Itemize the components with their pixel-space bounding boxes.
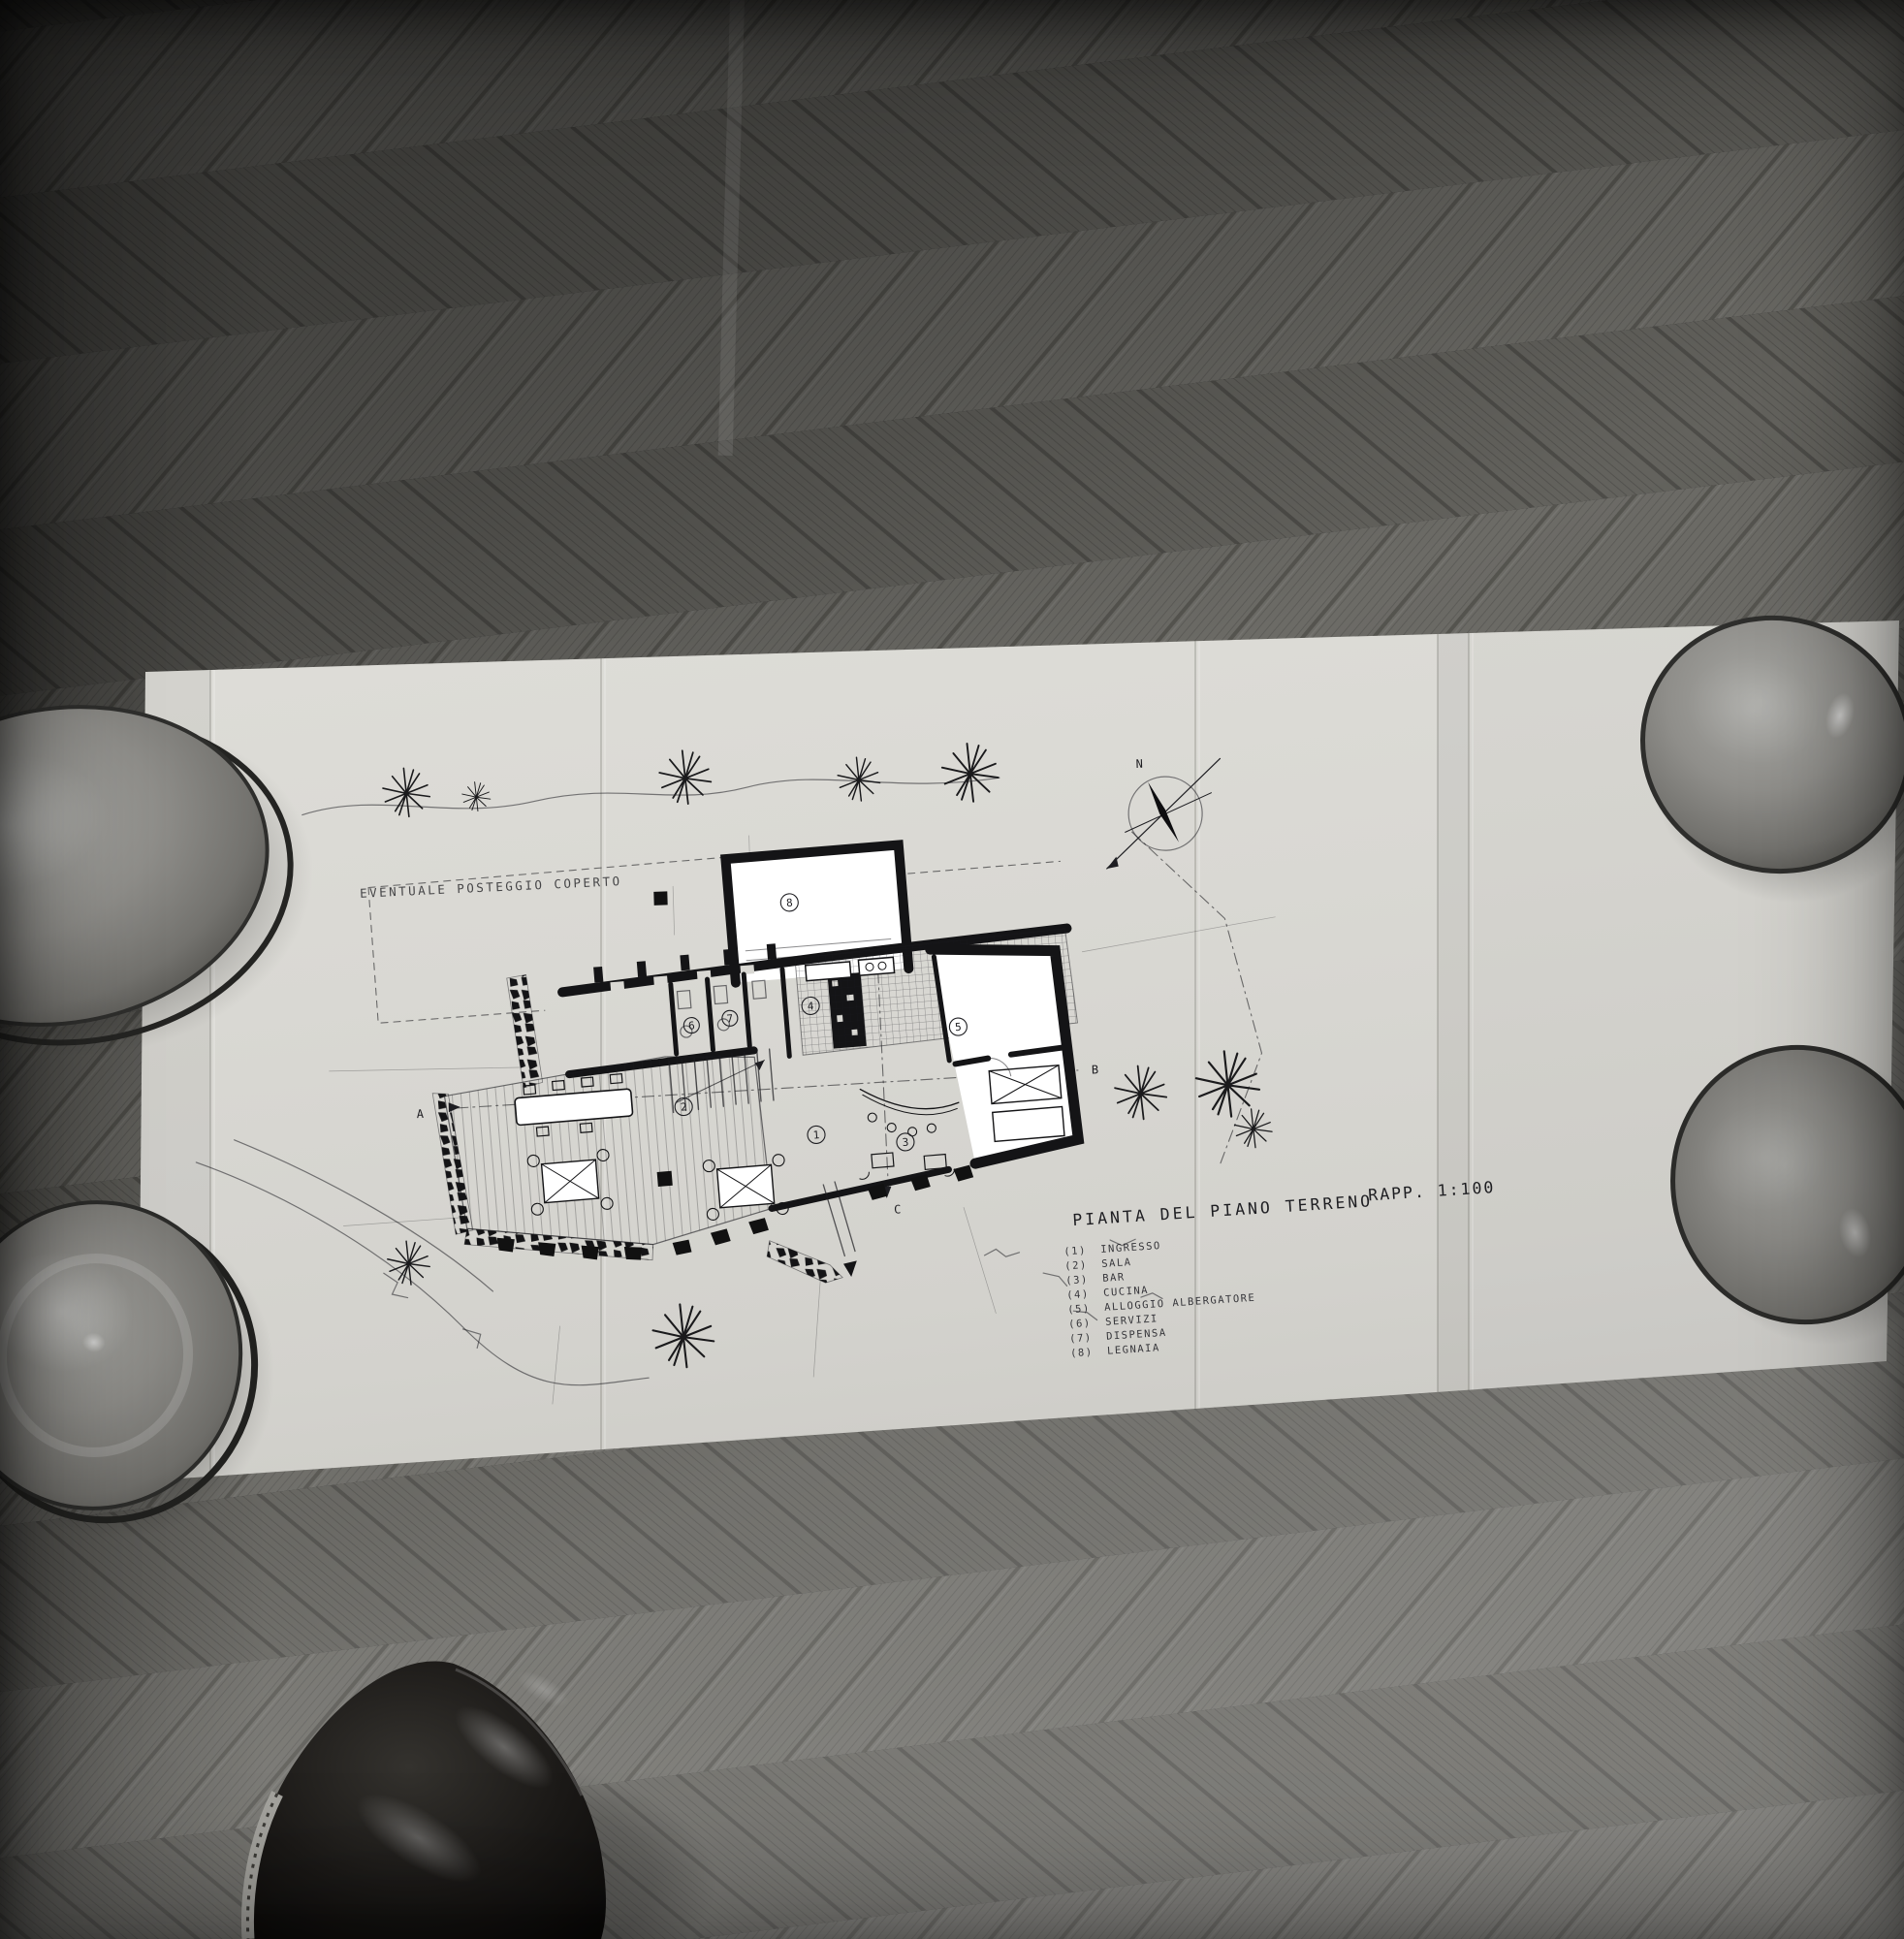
room-marker-2: 2 <box>680 1100 687 1113</box>
room-marker-1: 1 <box>812 1128 820 1141</box>
legend-num-5: (5) <box>1067 1303 1091 1316</box>
section-a-label: A <box>417 1107 425 1121</box>
section-b-label: B <box>1092 1063 1099 1076</box>
compass-rose: N <box>1103 754 1222 869</box>
legend-label-6: SERVIZI <box>1105 1313 1158 1328</box>
building-plan: 1 2 3 4 5 6 7 <box>415 832 1096 1314</box>
legend-num-7: (7) <box>1069 1332 1093 1345</box>
floor-plan-drawing: A B C D N <box>126 611 1904 1493</box>
drawing-sheet: A B C D N <box>126 611 1904 1493</box>
photo-scene: A B C D N <box>0 0 1904 1939</box>
site-note-text: EVENTUALE POSTEGGIO COPERTO <box>360 874 622 901</box>
legend-label-8: LEGNAIA <box>1107 1342 1160 1357</box>
room-marker-8: 8 <box>786 897 794 909</box>
main-hall <box>443 1048 791 1261</box>
legend-num-8: (8) <box>1070 1347 1094 1359</box>
legend-label-3: BAR <box>1102 1271 1126 1284</box>
legend-label-7: DISPENSA <box>1106 1327 1167 1343</box>
innkeeper-wing <box>931 938 1080 1165</box>
room-marker-3: 3 <box>902 1136 909 1149</box>
legend-num-6: (6) <box>1068 1318 1092 1330</box>
legend-num-1: (1) <box>1063 1245 1087 1257</box>
parking-pillar <box>653 891 667 905</box>
legend: (1) INGRESSO (2) SALA (3) BAR (4) CUCINA… <box>1063 1234 1259 1359</box>
room-marker-7: 7 <box>726 1012 734 1025</box>
room-marker-6: 6 <box>688 1019 696 1032</box>
drawing-title: PIANTA DEL PIANO TERRENO <box>1072 1192 1374 1229</box>
compass-north-label: N <box>1135 757 1143 771</box>
hall-pillar <box>657 1171 673 1187</box>
legend-num-2: (2) <box>1064 1259 1088 1272</box>
legend-num-4: (4) <box>1066 1288 1090 1301</box>
section-c-label: C <box>894 1202 902 1216</box>
room-marker-5: 5 <box>955 1021 963 1033</box>
legend-num-3: (3) <box>1065 1274 1089 1287</box>
legend-label-2: SALA <box>1101 1256 1132 1270</box>
title-block: PIANTA DEL PIANO TERRENO RAPP. 1:100 <box>1071 1178 1496 1229</box>
legend-label-1: INGRESSO <box>1100 1240 1161 1256</box>
